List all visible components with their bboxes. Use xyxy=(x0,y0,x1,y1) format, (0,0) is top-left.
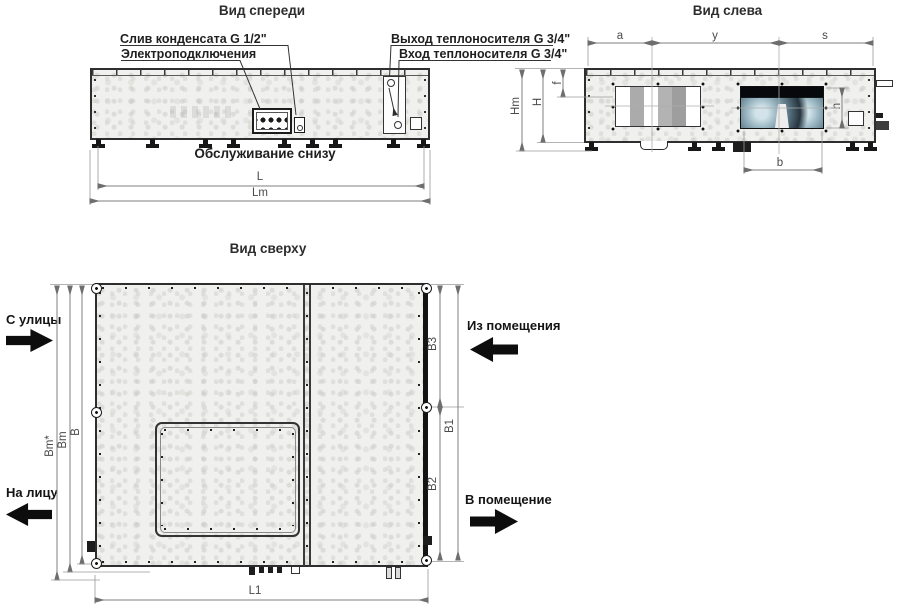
bottom-connector xyxy=(277,567,282,573)
dim-Bm-star: Bm* xyxy=(44,431,56,461)
dim-y: y xyxy=(695,30,735,42)
service-hatch xyxy=(155,422,300,537)
heat-inlet-port xyxy=(394,121,402,129)
left-view-left-fasteners xyxy=(588,79,590,137)
airflow-arrow-right-icon xyxy=(470,509,518,534)
drawing-canvas: Вид спереди Слив конденсата G 1/2" Элект… xyxy=(0,0,900,612)
dim-h: h xyxy=(831,91,843,121)
screw-icon xyxy=(421,555,432,566)
dim-B3: B3 xyxy=(427,329,439,359)
dim-B2: B2 xyxy=(427,469,439,499)
dim-a: a xyxy=(600,30,640,42)
left-edge-clip xyxy=(87,541,95,552)
foot xyxy=(688,142,701,151)
front-view-left-fasteners xyxy=(94,79,96,135)
front-view-right-fasteners xyxy=(424,79,426,135)
partition-line xyxy=(303,285,305,566)
drain-port xyxy=(297,125,303,131)
fan xyxy=(740,86,824,129)
callout-heat-outlet: Выход теплоносителя G 3/4" xyxy=(391,33,570,46)
foot-block xyxy=(733,142,751,152)
foot xyxy=(92,139,105,148)
airflow-arrow-right-icon xyxy=(6,329,53,352)
screw-icon xyxy=(421,402,432,413)
coil-connection-panel xyxy=(383,76,406,134)
flow-label-from-room: Из помещения xyxy=(467,318,561,333)
electrical-box xyxy=(252,108,292,134)
heat-exchanger xyxy=(615,86,701,127)
bottom-connector xyxy=(249,567,255,575)
top-view-right-fasteners xyxy=(418,292,420,558)
top-view-bottom-fasteners xyxy=(102,561,420,563)
electrical-glands xyxy=(256,112,288,130)
hatch-left-fasteners xyxy=(161,433,163,526)
top-view-top-fasteners xyxy=(102,287,420,289)
callout-service-below: Обслуживание снизу xyxy=(180,147,350,160)
foot xyxy=(846,142,859,151)
foot xyxy=(712,142,725,151)
bottom-handle xyxy=(640,141,668,150)
hatch-top-fasteners xyxy=(164,429,292,431)
dim-f: f xyxy=(552,68,564,98)
dim-L: L xyxy=(240,171,280,183)
condensate-drain-fitting xyxy=(294,117,305,133)
callout-electrical: Электроподключения xyxy=(121,48,256,61)
faint-stamp xyxy=(170,106,236,118)
bottom-connector xyxy=(259,567,264,573)
hatch-bottom-fasteners xyxy=(164,528,292,530)
side-pipe xyxy=(876,80,893,87)
screw-icon xyxy=(91,407,102,418)
dim-B1: B1 xyxy=(444,411,456,441)
left-view-title: Вид слева xyxy=(675,3,780,18)
dim-Bm: Bm xyxy=(57,425,69,455)
dim-Hm: Hm xyxy=(510,91,522,121)
heat-outlet-port xyxy=(387,79,395,87)
dim-L1: L1 xyxy=(235,585,275,597)
screw-icon xyxy=(421,283,432,294)
front-view-top-frame xyxy=(92,70,428,76)
foot xyxy=(417,139,430,148)
screw-icon xyxy=(91,558,102,569)
foot xyxy=(585,142,598,151)
foot xyxy=(864,142,877,151)
bottom-bracket xyxy=(291,567,300,574)
motor-terminal-box xyxy=(848,111,864,126)
partition-fasteners xyxy=(306,292,308,558)
hatch-right-fasteners xyxy=(292,433,294,526)
dim-Lm: Lm xyxy=(240,187,280,199)
dim-H: H xyxy=(532,87,544,117)
flow-label-from-street: С улицы xyxy=(6,312,61,327)
screw-icon xyxy=(91,283,102,294)
foot xyxy=(387,139,400,148)
dim-B: B xyxy=(70,417,82,447)
flow-label-to-room: В помещение xyxy=(465,492,552,507)
dim-b: b xyxy=(760,157,800,169)
callout-heat-inlet: Вход теплоносителя G 3/4" xyxy=(399,48,567,61)
bottom-pipe-stub xyxy=(395,567,401,579)
front-small-box xyxy=(410,117,422,130)
bottom-connector xyxy=(268,567,273,573)
front-view-title: Вид спереди xyxy=(197,3,327,18)
airflow-arrow-left-icon xyxy=(470,337,518,362)
left-view-right-fasteners xyxy=(868,79,870,137)
foot xyxy=(146,139,159,148)
right-edge-clip xyxy=(423,536,432,545)
airflow-arrow-left-icon xyxy=(6,503,52,526)
side-fitting-small xyxy=(876,113,883,118)
bottom-pipe-stub xyxy=(386,567,392,579)
partition-line xyxy=(309,285,311,566)
callout-condensate-drain: Слив конденсата G 1/2" xyxy=(120,33,267,46)
left-view-top-frame xyxy=(586,70,874,76)
side-fitting-large xyxy=(876,121,889,130)
top-view-title: Вид сверху xyxy=(205,241,331,256)
dim-s: s xyxy=(805,30,845,42)
top-view-left-fasteners xyxy=(99,292,101,558)
flow-label-to-street: На лицу xyxy=(6,485,58,500)
